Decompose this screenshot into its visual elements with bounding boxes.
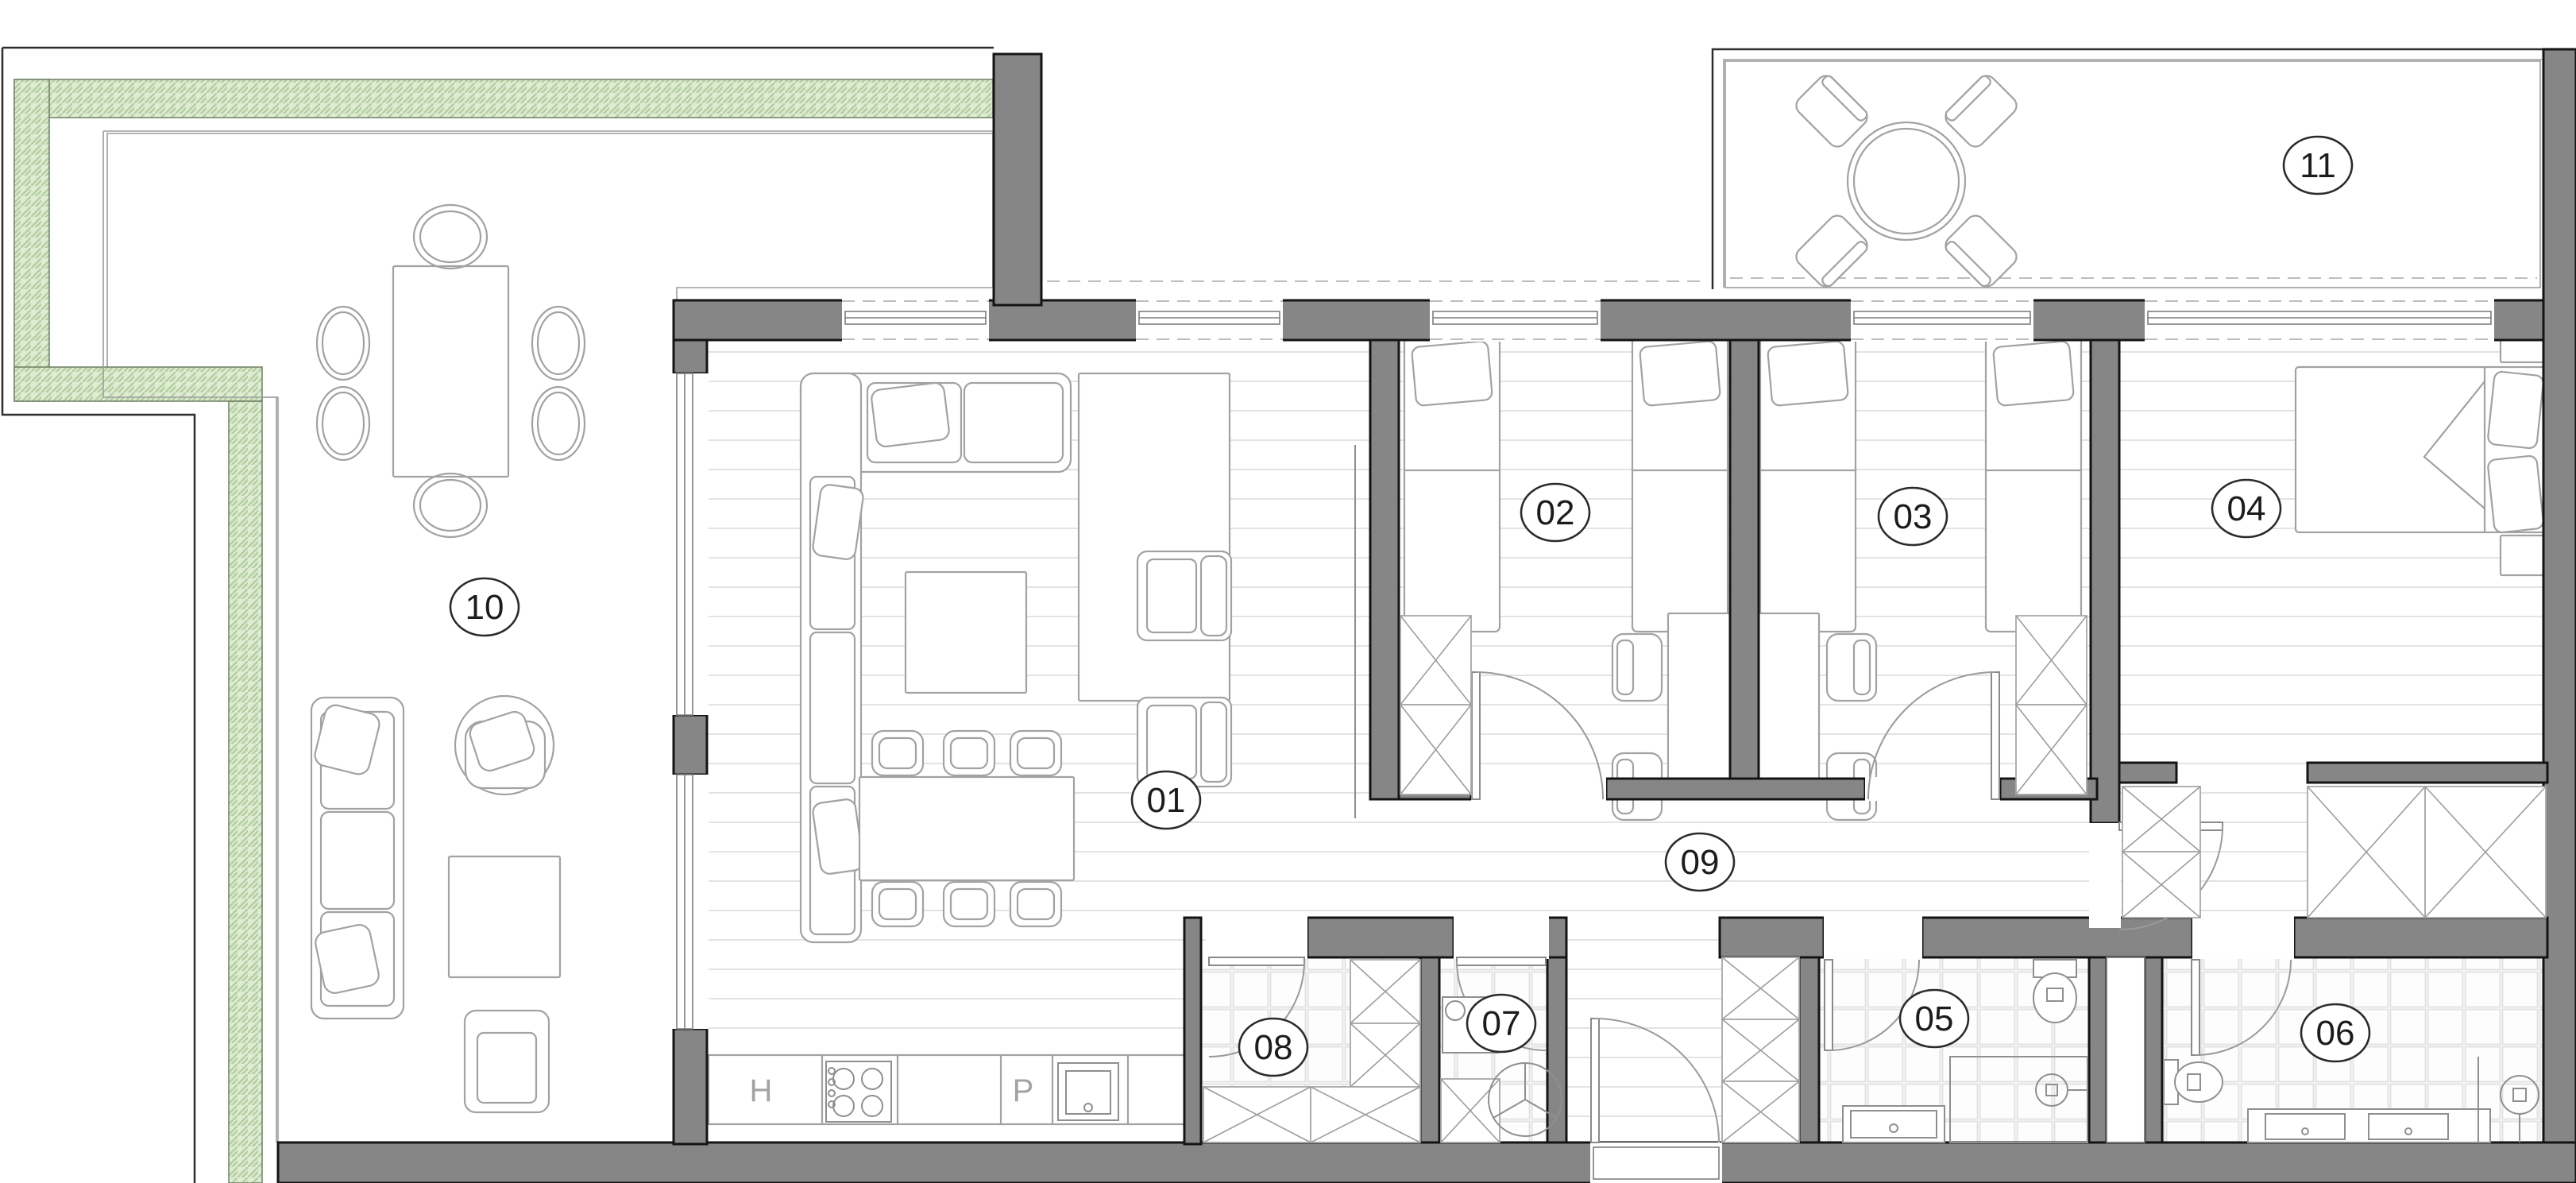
floor-plan-drawing: 0102030405060708091011HP bbox=[0, 0, 2576, 1183]
kitchen-appliance-letter: P bbox=[1013, 1073, 1034, 1108]
room-label-10: 10 bbox=[450, 578, 519, 636]
svg-text:03: 03 bbox=[1894, 497, 1933, 536]
room-label-05: 05 bbox=[1900, 990, 1968, 1047]
svg-text:09: 09 bbox=[1681, 843, 1720, 882]
svg-text:11: 11 bbox=[2300, 146, 2336, 185]
room-label-01: 01 bbox=[1132, 771, 1200, 829]
room-label-07: 07 bbox=[1467, 995, 1535, 1052]
svg-text:01: 01 bbox=[1147, 781, 1186, 820]
room-label-06: 06 bbox=[2301, 1004, 2369, 1061]
svg-text:06: 06 bbox=[2316, 1014, 2355, 1053]
svg-text:10: 10 bbox=[465, 588, 504, 627]
room-label-09: 09 bbox=[1666, 833, 1734, 891]
room-label-04: 04 bbox=[2212, 480, 2281, 537]
kitchen-appliance-letter: H bbox=[750, 1073, 773, 1108]
room-label-02: 02 bbox=[1521, 484, 1589, 541]
room-label-11: 11 bbox=[2284, 137, 2352, 194]
floor-plan-page: 0102030405060708091011HP bbox=[0, 0, 2576, 1183]
svg-text:07: 07 bbox=[1482, 1004, 1521, 1043]
svg-text:08: 08 bbox=[1254, 1028, 1293, 1067]
svg-text:05: 05 bbox=[1915, 999, 1954, 1038]
room-label-08: 08 bbox=[1239, 1019, 1307, 1076]
room-label-03: 03 bbox=[1879, 488, 1947, 545]
svg-text:04: 04 bbox=[2227, 489, 2266, 528]
svg-text:02: 02 bbox=[1536, 493, 1575, 532]
